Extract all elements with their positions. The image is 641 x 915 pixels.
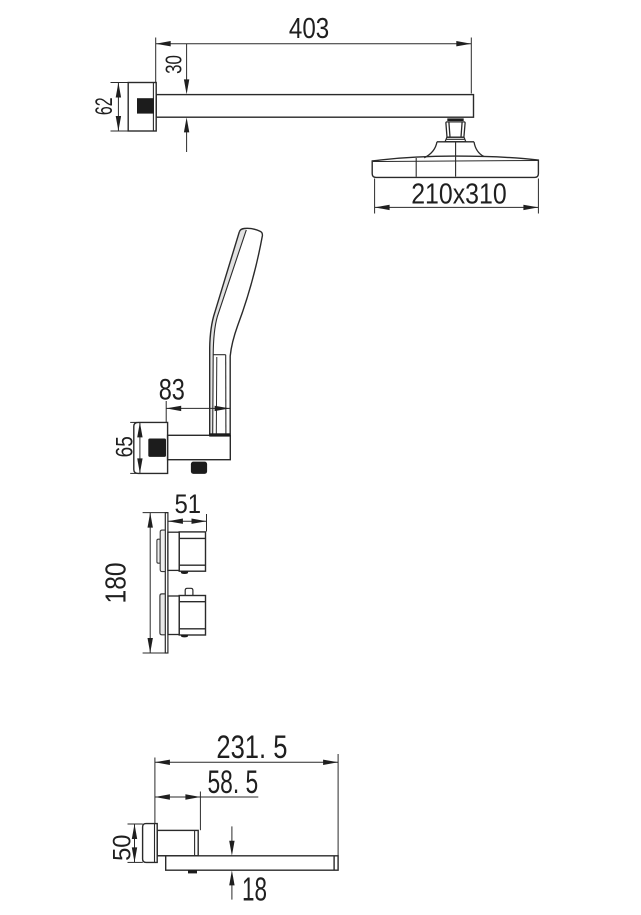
- svg-text:210x310: 210x310: [411, 178, 507, 210]
- svg-text:83: 83: [159, 374, 185, 407]
- svg-text:403: 403: [289, 13, 329, 45]
- svg-text:18: 18: [242, 871, 267, 908]
- svg-text:51: 51: [175, 489, 202, 519]
- svg-text:58. 5: 58. 5: [208, 764, 259, 800]
- svg-text:62: 62: [91, 97, 118, 115]
- svg-text:231. 5: 231. 5: [216, 729, 287, 765]
- svg-text:180: 180: [101, 562, 133, 603]
- svg-text:30: 30: [161, 55, 187, 74]
